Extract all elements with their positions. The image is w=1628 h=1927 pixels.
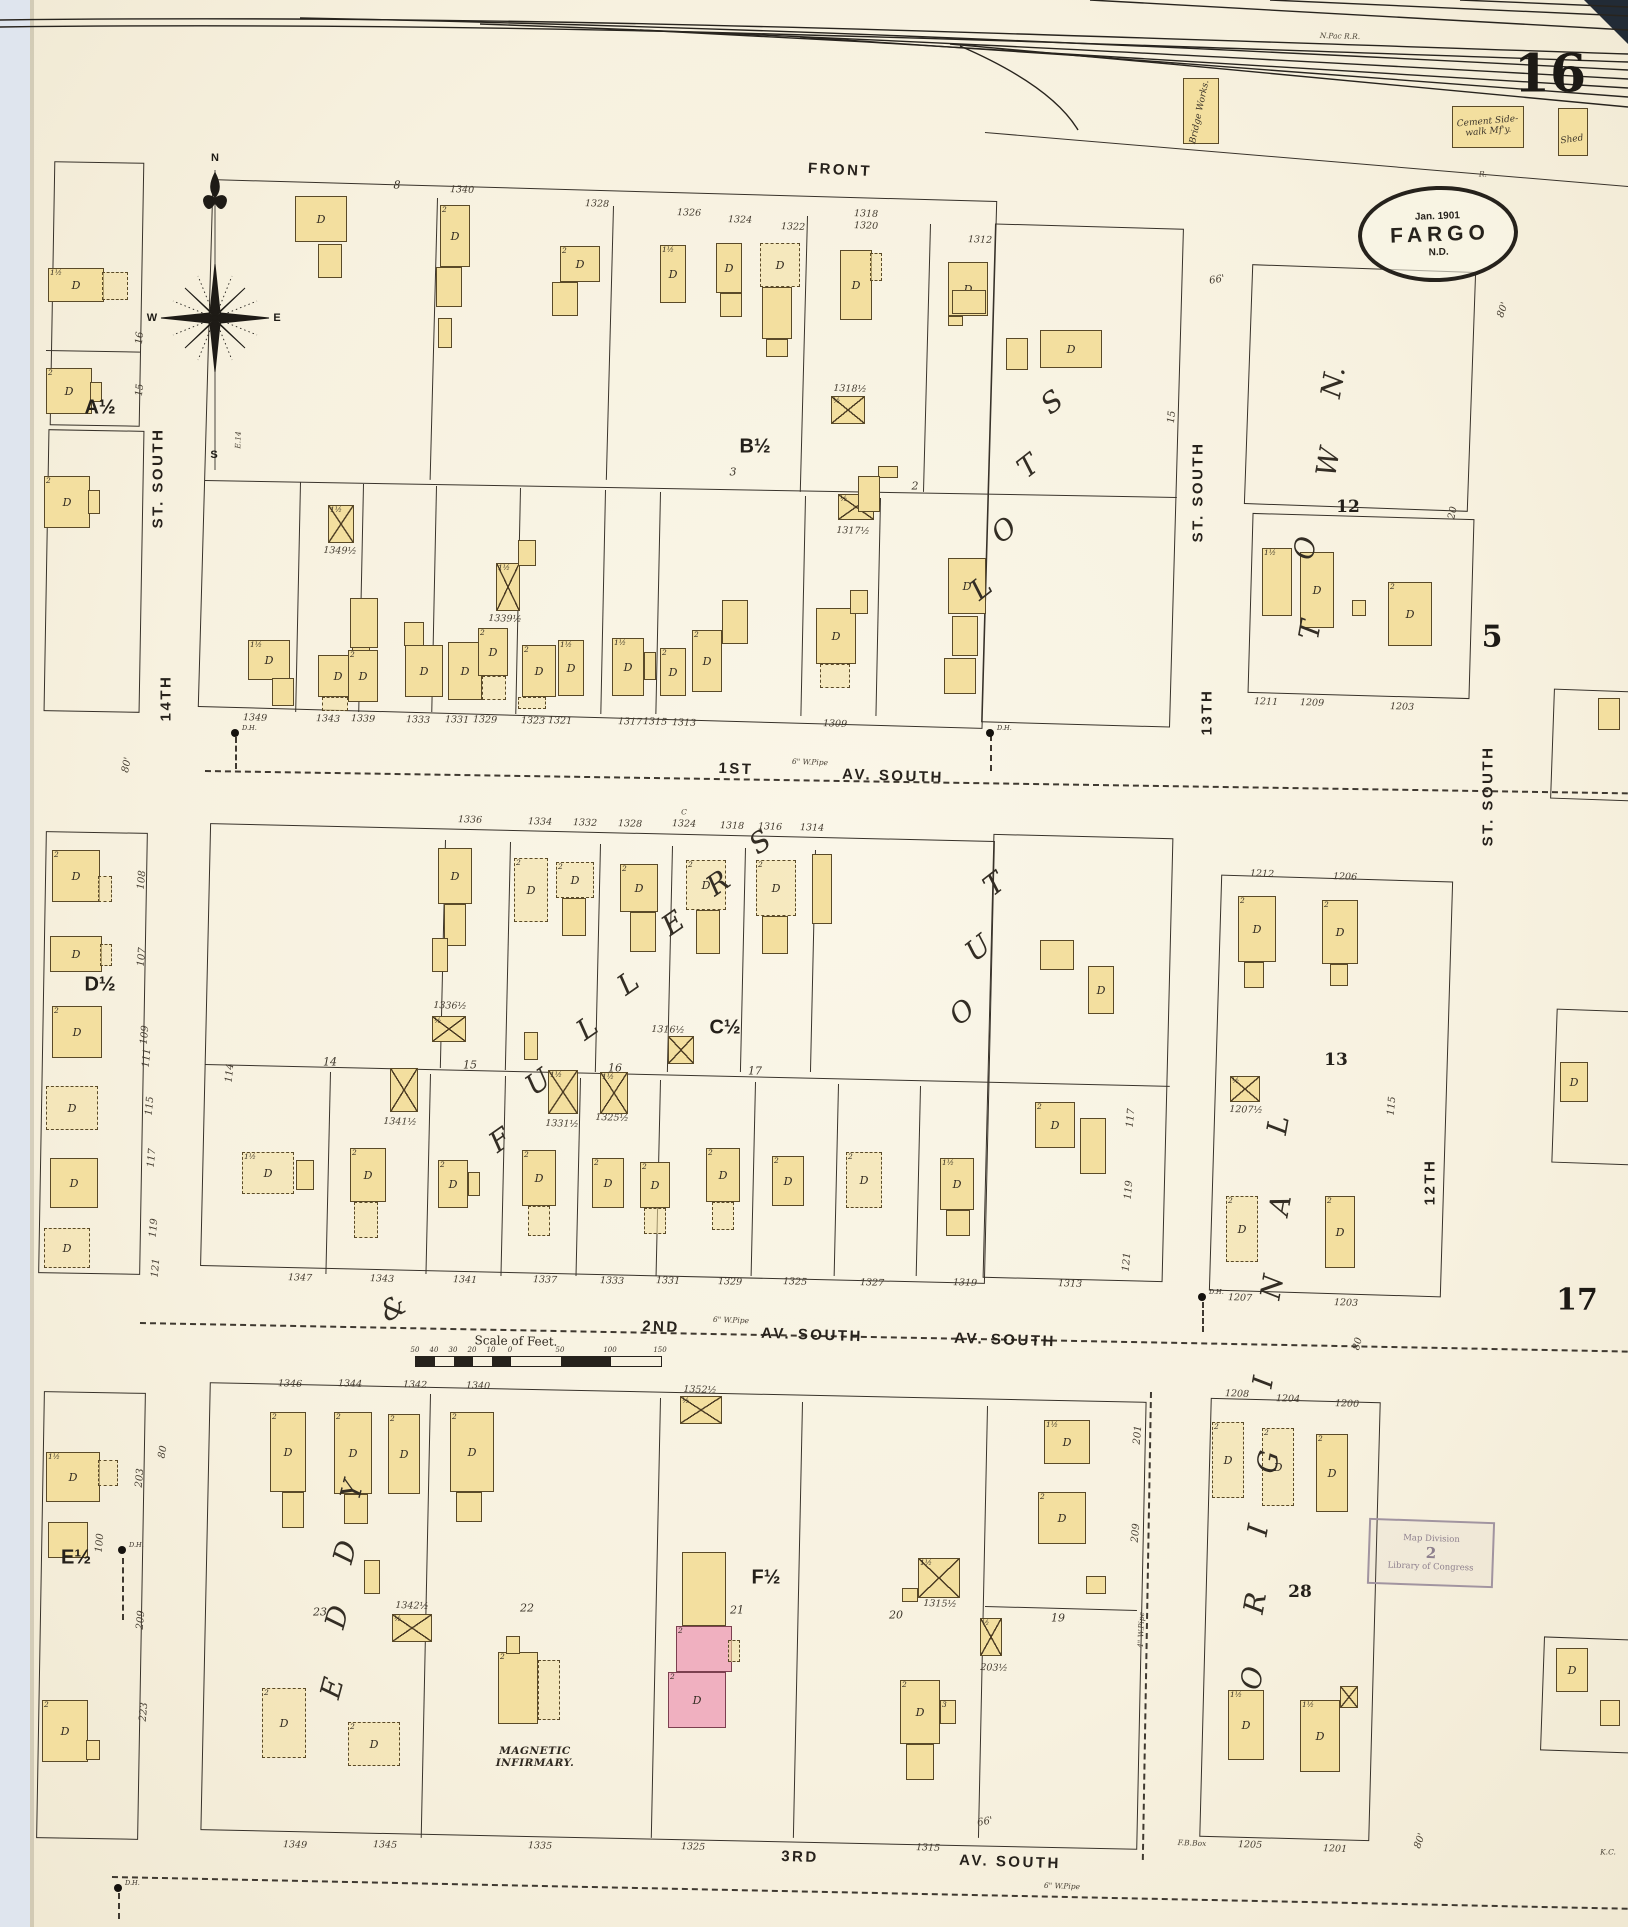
- map-label: 1331½: [545, 1118, 579, 1130]
- story-count: 2: [440, 1160, 445, 1169]
- map-label: 6" W.Pipe: [1044, 1881, 1080, 1891]
- building-footprint: [720, 293, 742, 317]
- story-count: 2: [562, 246, 567, 255]
- building-footprint: [722, 600, 748, 644]
- story-count: 2: [622, 864, 627, 873]
- building-footprint: D1½: [1228, 1690, 1264, 1760]
- building-footprint: [296, 1160, 314, 1190]
- map-label: 209: [1130, 1523, 1143, 1543]
- building-footprint: [404, 622, 424, 646]
- dwelling-label: D: [717, 244, 741, 292]
- building-footprint: D2: [438, 1160, 468, 1208]
- map-label: 1352½: [683, 1384, 717, 1396]
- dwelling-label: D: [841, 251, 871, 319]
- map-label: 8: [393, 178, 400, 191]
- dwelling-label: D: [389, 1415, 419, 1493]
- story-count: 1½: [560, 640, 572, 649]
- dwelling-label: D: [406, 646, 442, 696]
- sanborn-map-sheet: 16 5 17 Jan. 1901 FARGO N.D. Map Divisio…: [0, 0, 1628, 1927]
- building-footprint: [482, 676, 506, 700]
- map-label: N.: [1314, 364, 1352, 401]
- dwelling-label: D: [757, 861, 795, 915]
- water-pipe-line: [122, 1558, 124, 1620]
- building-footprint: [1352, 600, 1366, 616]
- map-label: 1322: [781, 221, 806, 233]
- building-footprint: D2: [846, 1152, 882, 1208]
- story-count: 1½: [48, 1452, 60, 1461]
- map-label: K.C.: [1600, 1848, 1616, 1857]
- building-footprint: D2: [620, 864, 658, 912]
- map-label: 19: [1051, 1612, 1065, 1625]
- map-label: 1316: [758, 821, 783, 833]
- building-footprint: D2: [1322, 900, 1358, 964]
- building-footprint: D2: [556, 862, 594, 898]
- map-label: 1332: [573, 817, 598, 829]
- map-label: 1321: [548, 715, 573, 727]
- stable-footprint: ½: [831, 396, 865, 424]
- story-count: 2: [694, 630, 699, 639]
- dwelling-label: D: [1389, 583, 1431, 645]
- scale-tick: 0: [508, 1346, 512, 1354]
- map-label: 1203: [1334, 1297, 1359, 1309]
- map-label: ST. SOUTH: [1190, 442, 1207, 543]
- building-footprint: [272, 678, 294, 706]
- map-label: 1ST: [718, 760, 754, 778]
- building-footprint: D: [50, 1158, 98, 1208]
- story-count: 1½: [942, 1158, 954, 1167]
- map-label: R.: [1479, 169, 1487, 178]
- map-label: 15: [134, 383, 146, 397]
- story-count: 1½: [244, 1152, 256, 1161]
- map-label: 117: [146, 1148, 159, 1168]
- scale-tick: 100: [603, 1346, 616, 1354]
- map-label: 15: [463, 1059, 477, 1072]
- building-footprint: [906, 1744, 934, 1780]
- building-footprint: 2: [498, 1652, 538, 1724]
- story-count: 2: [1390, 582, 1395, 591]
- building-footprint: [1330, 964, 1348, 986]
- story-count: 1½: [498, 563, 510, 572]
- stable-footprint: 1½: [548, 1070, 578, 1114]
- building-footprint: D2: [514, 858, 548, 922]
- map-label: 1347: [288, 1272, 313, 1284]
- map-label: 1318: [854, 208, 879, 220]
- map-label: 13TH: [1199, 689, 1216, 736]
- building-footprint: 1½: [1262, 548, 1292, 616]
- scale-tick: 30: [449, 1346, 458, 1354]
- dwelling-label: D: [451, 1413, 493, 1491]
- map-label: 209: [135, 1610, 148, 1630]
- building-footprint: D2: [640, 1162, 670, 1208]
- story-count: 2: [848, 1152, 853, 1161]
- story-count: 2: [902, 1680, 907, 1689]
- stable-footprint: [390, 1068, 418, 1112]
- map-label: 1200: [1335, 1398, 1360, 1410]
- story-count: 2: [1214, 1422, 1219, 1431]
- dwelling-label: D: [449, 643, 481, 699]
- dwelling-label: D: [1239, 897, 1275, 961]
- map-label: F½: [752, 1567, 781, 1590]
- map-label: 4" W.Pipe: [1136, 1612, 1146, 1648]
- story-count: 2: [48, 368, 53, 377]
- story-count: 1½: [1302, 1700, 1314, 1709]
- building-footprint: [354, 1202, 378, 1238]
- scale-bar: [415, 1356, 662, 1367]
- map-label: 203½: [980, 1662, 1008, 1674]
- block-outline: [1244, 264, 1476, 512]
- story-count: 2: [558, 862, 563, 871]
- block-outline: [981, 223, 1184, 727]
- building-footprint: D1½: [1300, 1700, 1340, 1772]
- dwelling-label: D: [1301, 553, 1333, 627]
- building-footprint: [902, 1588, 918, 1602]
- story-count: 2: [46, 476, 51, 485]
- map-label: 1340: [466, 1380, 491, 1392]
- map-label: 1339½: [488, 613, 522, 625]
- building-footprint: D: [816, 608, 856, 664]
- building-footprint: [1040, 940, 1074, 970]
- map-label: 1341: [453, 1274, 478, 1286]
- map-label: B½: [739, 436, 770, 459]
- map-label: 1324: [672, 818, 697, 830]
- map-label: 1349: [283, 1839, 308, 1851]
- block-outline: [44, 429, 145, 713]
- building-footprint: [1080, 1118, 1106, 1174]
- sheet-number: 16: [1514, 44, 1586, 105]
- building-footprint: D: [295, 196, 347, 242]
- map-label: 119: [1123, 1180, 1136, 1200]
- story-count: ½: [434, 1016, 441, 1025]
- story-count: 2: [44, 1700, 49, 1709]
- map-label: 100: [94, 1533, 107, 1553]
- building-footprint: [1558, 108, 1588, 156]
- story-count: ½: [394, 1614, 401, 1623]
- water-pipe-line: [235, 737, 237, 769]
- scale-tick: 10: [487, 1346, 496, 1354]
- dwelling-label: D: [1229, 1691, 1263, 1759]
- map-label: 1309: [823, 718, 848, 730]
- map-label: 1315: [643, 716, 668, 728]
- map-label: 1331: [445, 714, 470, 726]
- building-footprint: D2: [1238, 896, 1276, 962]
- map-label: F.B.Box: [1178, 1838, 1207, 1848]
- building-footprint: D: [716, 243, 742, 293]
- paper-edge: [30, 0, 34, 1927]
- dwelling-label: D: [693, 631, 721, 691]
- building-footprint: D2: [1325, 1196, 1355, 1268]
- map-label: 1325: [783, 1276, 808, 1288]
- library-of-congress-stamp: Map Division 2 Library of Congress: [1367, 1518, 1495, 1588]
- building-footprint: 3: [940, 1700, 956, 1724]
- story-count: 1½: [1230, 1690, 1242, 1699]
- building-footprint: [100, 944, 112, 966]
- building-footprint: D2: [668, 1672, 726, 1728]
- map-label: 1313: [672, 717, 697, 729]
- map-label: 1203: [1390, 701, 1415, 713]
- scale-tick: 40: [430, 1346, 439, 1354]
- building-footprint: [820, 664, 850, 688]
- story-count: 2: [594, 1158, 599, 1167]
- map-label: 6" W.Pipe: [713, 1315, 749, 1325]
- map-label: 1209: [1300, 697, 1325, 709]
- map-label: 80: [156, 1445, 169, 1459]
- story-count: 1½: [662, 245, 674, 254]
- building-footprint: D2: [350, 1148, 386, 1202]
- building-footprint: [644, 652, 656, 680]
- building-footprint: D2: [42, 1700, 88, 1762]
- building-footprint: D: [44, 1228, 90, 1268]
- map-label: 23: [313, 1606, 327, 1619]
- story-count: 2: [670, 1672, 675, 1681]
- building-footprint: [318, 244, 342, 278]
- dwelling-label: D: [515, 859, 547, 921]
- stable-footprint: 1½: [496, 563, 520, 611]
- stamp-date: Jan. 1901: [1415, 210, 1460, 223]
- map-label: 1340: [450, 184, 475, 196]
- building-footprint: D2: [592, 1158, 624, 1208]
- building-footprint: D: [760, 243, 800, 287]
- map-label: 3: [730, 466, 737, 479]
- dwelling-label: D: [53, 1007, 101, 1057]
- hydrant-icon: [114, 1884, 122, 1892]
- map-label: 1329: [473, 714, 498, 726]
- building-footprint: D1½: [940, 1158, 974, 1210]
- map-label: 1336½: [433, 1000, 467, 1012]
- building-footprint: [282, 1492, 304, 1528]
- building-footprint: [86, 1740, 100, 1760]
- building-footprint: [944, 658, 976, 694]
- map-label: 1318: [720, 820, 745, 832]
- story-count: 2: [662, 648, 667, 657]
- building-footprint: [870, 253, 882, 281]
- dwelling-label: D: [761, 244, 799, 286]
- dwelling-label: D: [661, 246, 685, 302]
- stable-footprint: ½: [980, 1618, 1002, 1656]
- story-count: ½: [982, 1618, 989, 1627]
- dwelling-label: D: [1089, 967, 1113, 1013]
- map-label: 1201: [1323, 1843, 1348, 1855]
- hydrant-label: D.H.: [125, 1879, 140, 1887]
- dwelling-label: D: [1557, 1649, 1587, 1691]
- stable-footprint: 1½: [918, 1558, 960, 1598]
- map-label: 1334: [528, 816, 553, 828]
- map-label: E.14: [233, 431, 243, 449]
- dwelling-label: D: [613, 639, 643, 695]
- map-label: ST. SOUTH: [1480, 746, 1497, 847]
- dwelling-label: D: [1039, 1493, 1085, 1543]
- building-footprint: D: [448, 642, 482, 700]
- map-label: 1316½: [651, 1024, 685, 1036]
- building-footprint: D1½: [46, 1452, 100, 1502]
- building-footprint: [364, 1560, 380, 1594]
- building-footprint: [456, 1492, 482, 1522]
- building-footprint: D2: [450, 1412, 494, 1492]
- building-footprint: D: [1560, 1062, 1588, 1102]
- dwelling-label: D: [817, 609, 855, 663]
- map-label: 111: [141, 1048, 154, 1068]
- hydrant-label: D.H.: [1209, 1288, 1224, 1296]
- story-count: 2: [350, 650, 355, 659]
- hydrant-icon: [118, 1546, 126, 1554]
- building-footprint: D: [1040, 330, 1102, 368]
- story-count: 2: [500, 1652, 505, 1661]
- building-footprint: [468, 1172, 480, 1196]
- story-count: 2: [642, 1162, 647, 1171]
- building-footprint: [1244, 962, 1264, 988]
- map-label: 28: [1288, 1582, 1312, 1602]
- map-label: 22: [520, 1602, 534, 1615]
- story-count: 2: [352, 1148, 357, 1157]
- map-label: 1205: [1238, 1839, 1263, 1851]
- building-footprint: D2: [262, 1688, 306, 1758]
- building-footprint: [644, 1208, 666, 1234]
- map-label: 121: [150, 1258, 163, 1278]
- building-footprint: D2: [1035, 1102, 1075, 1148]
- map-label: AV. SOUTH: [761, 1325, 863, 1346]
- dwelling-label: D: [901, 1681, 939, 1743]
- building-footprint: D1½: [1044, 1420, 1090, 1464]
- story-count: 1½: [920, 1558, 932, 1567]
- map-label: 1314: [800, 822, 825, 834]
- dwelling-label: D: [349, 1723, 399, 1765]
- story-count: 2: [1040, 1492, 1045, 1501]
- map-label: 2ND: [642, 1318, 680, 1336]
- map-label: 107: [136, 947, 149, 967]
- building-footprint: [518, 540, 536, 566]
- dwelling-label: D: [45, 1229, 89, 1267]
- map-label: 13: [1324, 1050, 1348, 1070]
- map-label: 12: [1336, 497, 1360, 517]
- dwelling-label: D: [847, 1153, 881, 1207]
- building-footprint: [762, 916, 788, 954]
- dwelling-label: D: [45, 477, 89, 527]
- story-count: 2: [1264, 1428, 1269, 1437]
- map-label: 1335: [528, 1840, 553, 1852]
- map-label: 1317½: [836, 525, 870, 537]
- map-label: 1326: [677, 207, 702, 219]
- building-footprint: [1598, 698, 1620, 730]
- map-label: 3RD: [781, 1848, 819, 1866]
- map-label: 1328: [585, 198, 610, 210]
- map-label: 1339: [351, 713, 376, 725]
- building-footprint: [538, 1660, 560, 1720]
- dwelling-label: D: [296, 197, 346, 241]
- map-label: 1342½: [395, 1600, 429, 1612]
- story-count: 2: [390, 1414, 395, 1423]
- scale-tick: 50: [556, 1346, 565, 1354]
- building-footprint: [946, 1210, 970, 1236]
- story-count: 1½: [1264, 548, 1276, 557]
- building-footprint: [562, 898, 586, 936]
- map-label: 1319: [953, 1277, 978, 1289]
- building-footprint: D: [50, 936, 102, 972]
- building-footprint: [728, 1640, 740, 1662]
- block-outline: [983, 834, 1174, 1282]
- map-label: 1315½: [923, 1598, 957, 1610]
- story-count: 2: [758, 860, 763, 869]
- stable-footprint: ½: [392, 1614, 432, 1642]
- map-label: 1312: [968, 234, 993, 246]
- map-label: N: [211, 152, 219, 164]
- hydrant-icon: [231, 729, 239, 737]
- water-pipe-line: [990, 735, 992, 771]
- building-footprint: [552, 282, 578, 316]
- building-footprint: D1½: [242, 1152, 294, 1194]
- dwelling-label: D: [1227, 1197, 1257, 1261]
- map-label: 1318½: [833, 383, 867, 395]
- building-footprint: D1½: [660, 245, 686, 303]
- map-label: 1204: [1276, 1393, 1301, 1405]
- map-label: 1313: [1058, 1278, 1083, 1290]
- map-label: 201: [1132, 1425, 1145, 1445]
- map-label: 1346: [278, 1378, 303, 1390]
- water-pipe-line: [1202, 1302, 1204, 1332]
- map-label: E½: [61, 1547, 91, 1570]
- map-label: A½: [84, 397, 115, 420]
- dwelling-label: D: [263, 1689, 305, 1757]
- building-footprint: [812, 854, 832, 924]
- building-footprint: [524, 1032, 538, 1060]
- building-footprint: D2: [692, 630, 722, 692]
- building-footprint: D: [840, 250, 872, 320]
- story-count: 2: [54, 1006, 59, 1015]
- building-footprint: D2: [1212, 1422, 1244, 1498]
- story-count: 2: [54, 850, 59, 859]
- map-label: E: [273, 312, 280, 324]
- map-label: 1329: [718, 1276, 743, 1288]
- map-label: 16: [134, 331, 146, 345]
- hydrant-label: D.H.: [129, 1541, 144, 1549]
- map-label: 1341½: [383, 1116, 417, 1128]
- story-count: 2: [350, 1722, 355, 1731]
- story-count: 2: [1318, 1434, 1323, 1443]
- building-footprint: [682, 1552, 726, 1626]
- building-footprint: [948, 316, 963, 326]
- stable-footprint: 1½: [600, 1072, 628, 1114]
- map-label: 117: [1125, 1108, 1138, 1128]
- dwelling-label: D: [1213, 1423, 1243, 1497]
- map-label: 115: [1386, 1096, 1399, 1116]
- map-label: ST. SOUTH: [150, 428, 167, 529]
- map-label: 1336: [458, 814, 483, 826]
- building-footprint: D2: [1038, 1492, 1086, 1544]
- compass-rose-icon: [150, 152, 280, 482]
- map-label: 2: [912, 480, 919, 493]
- map-label: 1207½: [1229, 1104, 1263, 1116]
- story-count: 2: [272, 1412, 277, 1421]
- building-footprint: D2: [1316, 1434, 1348, 1512]
- dwelling-label: D: [1317, 1435, 1347, 1511]
- map-label: 16: [608, 1062, 622, 1075]
- building-footprint: D2: [1226, 1196, 1258, 1262]
- map-label: 114: [224, 1063, 237, 1083]
- building-footprint: [766, 339, 788, 357]
- story-count: 2: [708, 1148, 713, 1157]
- dwelling-label: D: [53, 851, 99, 901]
- map-label: 121: [1121, 1252, 1134, 1272]
- story-count: 1½: [614, 638, 626, 647]
- map-label: 1207: [1228, 1292, 1253, 1304]
- building-footprint: [528, 1206, 550, 1236]
- map-label: 1349½: [323, 545, 357, 557]
- dwelling-label: D: [271, 1413, 305, 1491]
- map-label: AV. SOUTH: [842, 766, 944, 787]
- story-count: 2: [524, 645, 529, 654]
- building-footprint: D1½: [558, 640, 584, 696]
- stable-footprint: ½: [680, 1396, 722, 1424]
- building-footprint: [712, 1202, 734, 1230]
- map-label: 1323: [521, 715, 546, 727]
